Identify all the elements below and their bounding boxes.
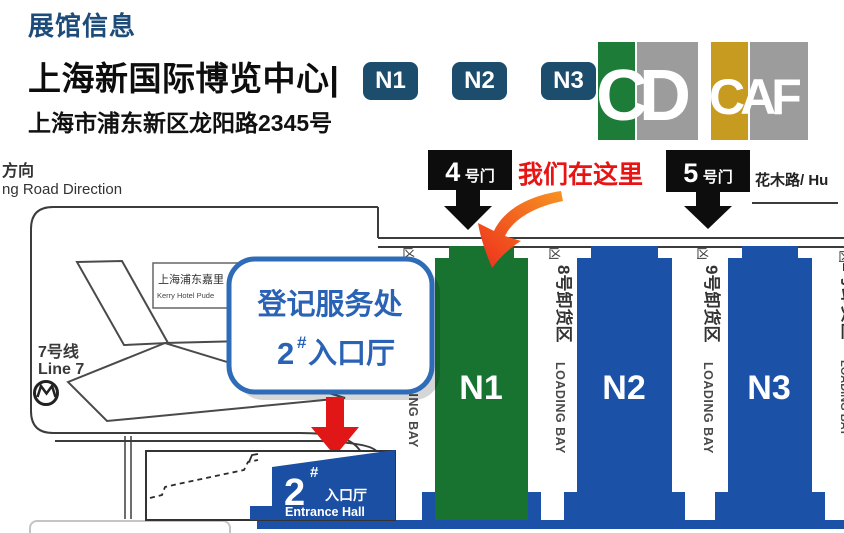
huamu-road-label: 花木路/ Hu (755, 171, 828, 189)
metro-logo-icon (35, 382, 58, 405)
caf-logo-letters: CAF (709, 69, 800, 125)
kerry-hotel-zh: 上海浦东嘉里 (158, 272, 224, 286)
hall-badge-n3: N3 (541, 62, 596, 100)
entrance-hash: # (310, 464, 319, 481)
gate-4-sign: 4 号门 (428, 150, 512, 230)
metro-line-zh: 7号线 (38, 342, 79, 361)
hall-badge-n2: N2 (452, 62, 507, 100)
hall-n1: N1 (422, 246, 541, 520)
hall-n2: N2 (564, 246, 685, 520)
venue-map: 方向 ng Road Direction 7号线 Line 7 (0, 140, 844, 533)
loading-bay-4-label-en: LOADING BAY (838, 360, 844, 437)
loading-bay-3-label-en: LOADING BAY (701, 362, 715, 454)
loading-bay-2-label-en: LOADING BAY (553, 362, 567, 454)
venue-name: 上海新国际博览中心| (28, 52, 339, 100)
caf-logo-icon: CAF (709, 42, 808, 140)
corridor-strip (257, 520, 844, 529)
gate-4-arrow-icon (444, 190, 492, 230)
hall-badge-n1: N1 (363, 62, 418, 100)
venue-address: 上海市浦东新区龙阳路2345号 (28, 104, 332, 138)
loading-bay-3-label-zh: 9号卸货区 (702, 265, 722, 342)
road-direction-zh: 方向 (2, 161, 34, 180)
dock-marker-icon: 凶 (547, 247, 562, 260)
gate-5-suffix: 号门 (703, 168, 733, 186)
road-block-outline (30, 521, 230, 533)
hall-n3-label: N3 (747, 369, 790, 407)
loading-bay-4-label-zh: 1号卸货区 (839, 262, 844, 339)
gate-5-sign: 5 号门 (666, 150, 750, 229)
entrance-label-en: Entrance Hall (285, 505, 365, 519)
hall-n1-label: N1 (459, 369, 502, 407)
gate-5-arrow-icon (684, 192, 732, 229)
registration-callout: 登记服务处 2 # 入口厅 (229, 259, 440, 400)
entrance-arrow-icon (311, 397, 359, 456)
callout-line2-rest: 入口厅 (308, 338, 395, 370)
gate-5-number: 5 (683, 158, 698, 188)
hall-n3: N3 (715, 246, 825, 520)
metro-line-en: Line 7 (38, 361, 84, 378)
entrance-label-zh: 入口厅 (325, 487, 367, 503)
loading-bay-2-label-zh: 8号卸货区 (554, 265, 574, 342)
gate-4-number: 4 (445, 157, 460, 187)
page-title: 展馆信息 (28, 6, 136, 43)
exhibition-info-page: 展馆信息 上海新国际博览中心| N1 N2 N3 上海市浦东新区龙阳路2345号… (0, 0, 844, 533)
here-text: 我们在这里 (518, 160, 643, 189)
cd-logo-icon: CD (598, 42, 698, 140)
dock-marker-icon: 凶 (695, 247, 710, 260)
callout-hash: # (297, 333, 307, 352)
road-direction-en: ng Road Direction (2, 181, 122, 198)
gate-4-suffix: 号门 (465, 167, 495, 185)
callout-hall-number: 2 (277, 336, 294, 371)
cd-logo-letters: CD (598, 56, 688, 136)
hall-n2-label: N2 (602, 369, 645, 407)
organizer-logos: CD CAF (598, 42, 810, 140)
callout-line1: 登记服务处 (256, 288, 402, 321)
kerry-hotel-en: Kerry Hotel Pude (157, 291, 214, 300)
entrance-hall-block: 2 # 入口厅 Entrance Hall (146, 450, 395, 520)
